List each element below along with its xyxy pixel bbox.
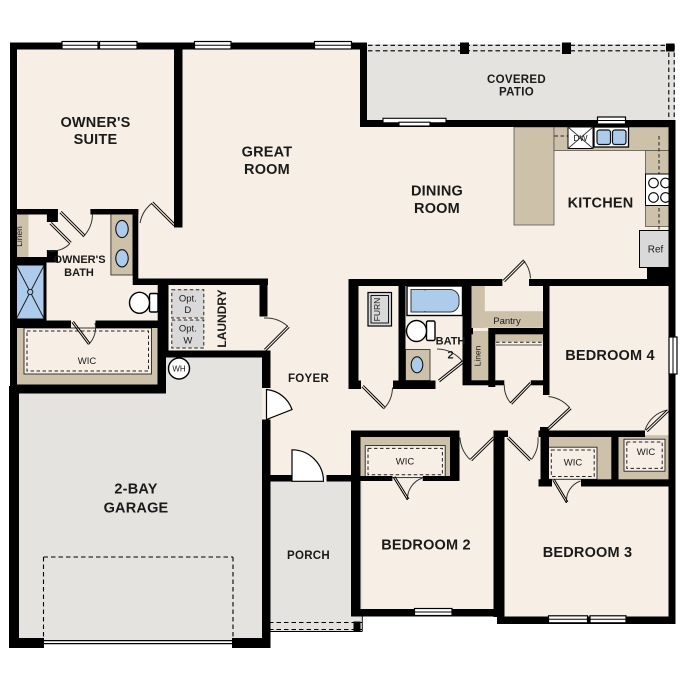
svg-text:FURN: FURN: [372, 298, 382, 322]
svg-text:BEDROOM 4: BEDROOM 4: [565, 348, 655, 364]
svg-text:COVERED: COVERED: [487, 74, 546, 86]
svg-text:WIC: WIC: [637, 447, 656, 458]
svg-text:DINING: DINING: [411, 184, 463, 200]
svg-text:WIC: WIC: [564, 458, 583, 469]
svg-text:SUITE: SUITE: [74, 132, 118, 148]
svg-text:GREAT: GREAT: [242, 145, 293, 161]
svg-text:KITCHEN: KITCHEN: [568, 196, 634, 212]
svg-text:W: W: [183, 336, 192, 347]
svg-text:BATH: BATH: [64, 267, 94, 279]
svg-text:DW: DW: [573, 133, 587, 143]
svg-text:OWNER'S: OWNER'S: [60, 115, 130, 131]
svg-text:BATH: BATH: [436, 336, 466, 348]
svg-text:2-BAY: 2-BAY: [114, 482, 157, 498]
svg-text:OWNER'S: OWNER'S: [53, 254, 105, 266]
svg-text:Opt.: Opt.: [179, 324, 197, 335]
svg-text:PORCH: PORCH: [287, 550, 330, 562]
svg-text:2: 2: [447, 350, 453, 362]
svg-text:Opt.: Opt.: [179, 294, 197, 305]
svg-text:Ref: Ref: [648, 245, 664, 256]
svg-text:GARAGE: GARAGE: [104, 501, 169, 517]
svg-text:WH: WH: [172, 364, 186, 373]
svg-text:Linen: Linen: [14, 226, 24, 247]
svg-text:WIC: WIC: [396, 457, 415, 468]
svg-text:WIC: WIC: [78, 356, 97, 367]
svg-text:ROOM: ROOM: [414, 201, 460, 217]
svg-text:D: D: [184, 305, 191, 316]
svg-text:Pantry: Pantry: [493, 316, 521, 327]
svg-text:ROOM: ROOM: [244, 162, 290, 178]
svg-text:BEDROOM 3: BEDROOM 3: [543, 545, 633, 561]
svg-text:BEDROOM 2: BEDROOM 2: [381, 538, 471, 554]
svg-text:PATIO: PATIO: [499, 87, 534, 99]
svg-text:FOYER: FOYER: [288, 373, 330, 385]
svg-text:Linen: Linen: [473, 345, 483, 366]
svg-text:LAUNDRY: LAUNDRY: [215, 289, 229, 347]
